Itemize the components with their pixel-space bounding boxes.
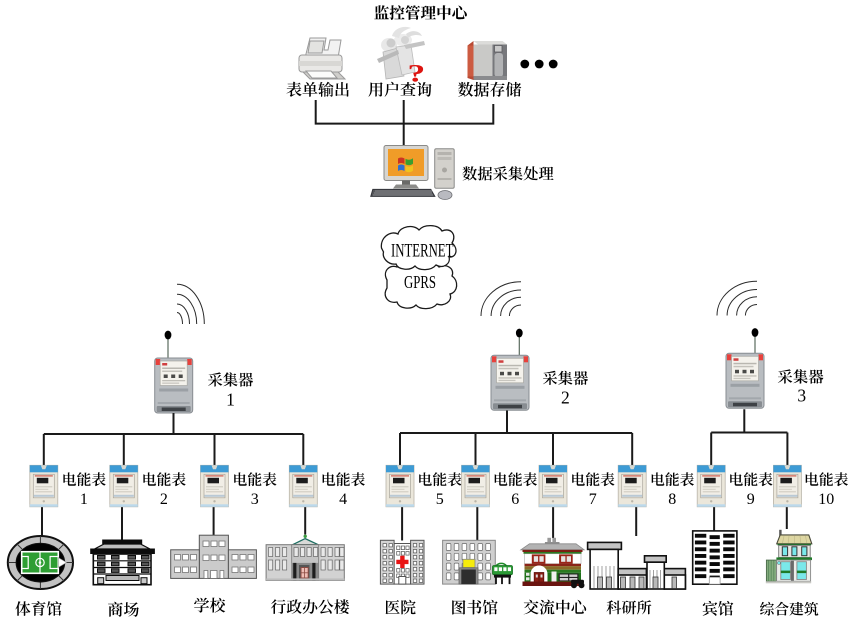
svg-text:9: 9 [747, 491, 755, 508]
svg-text:3: 3 [251, 491, 259, 508]
svg-text:4: 4 [339, 491, 347, 508]
svg-text:2: 2 [561, 388, 570, 408]
svg-text:8: 8 [668, 491, 676, 508]
svg-text:1: 1 [80, 491, 88, 508]
svg-text:10: 10 [818, 491, 834, 508]
svg-text:5: 5 [436, 491, 444, 508]
svg-text:INTERNET: INTERNET [391, 241, 454, 262]
svg-text:1: 1 [226, 389, 235, 409]
svg-text:3: 3 [797, 386, 806, 406]
svg-text:GPRS: GPRS [404, 272, 436, 292]
svg-text:6: 6 [511, 491, 519, 508]
svg-text:7: 7 [589, 491, 597, 508]
svg-text:?: ? [408, 60, 426, 88]
svg-text:2: 2 [160, 491, 168, 508]
